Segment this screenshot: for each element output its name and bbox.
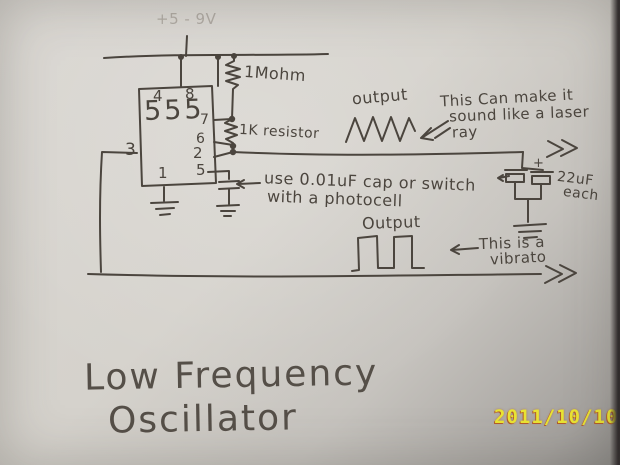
- wire-middle-rail: [233, 140, 577, 157]
- cap-note-line2: with a photocell: [267, 189, 403, 210]
- square-waveform: [352, 236, 424, 271]
- ic-pin5-label: 5: [196, 163, 206, 178]
- resistor-1mohm-label: 1Mohm: [244, 64, 307, 84]
- laser-note-line3: ray: [452, 125, 478, 141]
- supply-voltage-label: +5 - 9V: [156, 12, 216, 27]
- wire-top-rail: [104, 36, 328, 59]
- cap-polarity-plus: +: [533, 157, 544, 170]
- capacitors-22uf-symbol: [498, 152, 553, 222]
- capacitor-001uf-symbol: [208, 171, 239, 204]
- arrow-to-cap-note: [237, 180, 260, 188]
- photo-edge-shadow: [610, 0, 620, 465]
- resistor-1mohm-symbol: [226, 56, 240, 119]
- camera-date-stamp: 2011/10/10: [494, 406, 618, 428]
- arrow-vibrato-note: [451, 245, 478, 254]
- schematic-title-line2: Oscillator: [108, 400, 299, 439]
- ic-pin1-label: 1: [158, 166, 168, 181]
- ic-pin7-label: 7: [200, 113, 209, 127]
- ic-pin3-label: 3: [125, 142, 136, 159]
- caps-qty-label: each: [562, 185, 599, 203]
- square-output-label: Output: [362, 214, 421, 232]
- wire-pin6-pin2: [214, 142, 235, 157]
- resistor-1k-label: 1K resistor: [239, 123, 320, 141]
- ground-symbol-pin5: [217, 205, 239, 216]
- photo-of-schematic: +5 - 9V 4 8 555 7 6 2 5 3 1 1Mohm 1K res…: [0, 0, 620, 465]
- arrow-laser-note: [421, 121, 450, 140]
- triangle-waveform: [346, 117, 415, 142]
- ic-pin2-label: 2: [193, 146, 203, 161]
- schematic-title-line1: Low Frequency: [84, 355, 379, 396]
- vibrato-note-line2: vibrato: [490, 250, 547, 268]
- ground-symbol-pin1: [151, 187, 178, 215]
- ic-name-label: 555: [144, 96, 205, 125]
- triangle-output-label: output: [351, 87, 408, 108]
